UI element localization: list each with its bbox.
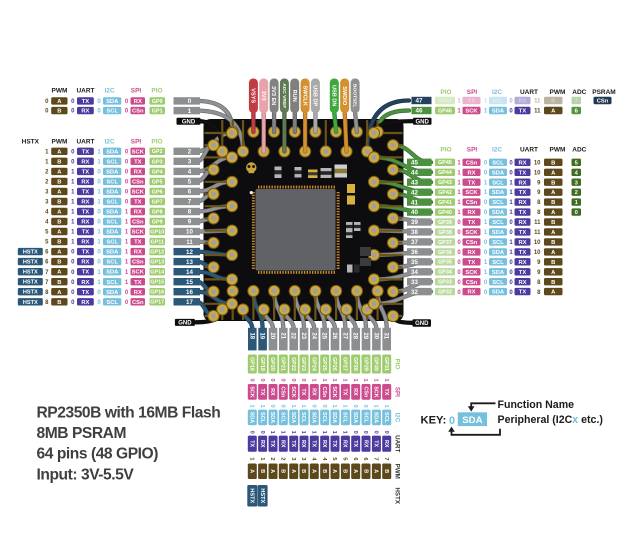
svg-text:17: 17	[186, 299, 193, 306]
svg-text:RX: RX	[134, 169, 142, 175]
svg-text:SCL: SCL	[362, 412, 368, 423]
svg-text:B: B	[551, 200, 555, 206]
svg-text:SCL: SCL	[280, 412, 286, 423]
svg-text:RX: RX	[518, 240, 526, 246]
svg-text:GP17: GP17	[150, 300, 164, 306]
svg-text:46: 46	[416, 108, 423, 115]
svg-text:2: 2	[575, 190, 578, 196]
svg-text:A: A	[249, 469, 255, 473]
svg-text:SPI: SPI	[131, 88, 142, 95]
svg-text:TX: TX	[82, 190, 90, 196]
svg-text:GP30: GP30	[373, 357, 379, 371]
svg-text:TX: TX	[519, 290, 527, 296]
svg-text:11: 11	[534, 99, 541, 105]
svg-text:GP22: GP22	[290, 357, 296, 371]
svg-text:5: 5	[331, 457, 337, 460]
svg-text:I2C: I2C	[394, 413, 401, 423]
svg-text:1: 1	[300, 405, 306, 408]
svg-text:TX: TX	[468, 220, 476, 226]
svg-text:RX: RX	[518, 99, 526, 105]
svg-text:16: 16	[186, 289, 193, 296]
svg-text:1: 1	[290, 431, 296, 434]
svg-text:GP42: GP42	[438, 190, 452, 196]
svg-text:TX: TX	[300, 388, 306, 395]
svg-text:SPI: SPI	[131, 139, 142, 146]
svg-text:PIO: PIO	[151, 88, 162, 95]
svg-text:I2C: I2C	[492, 147, 502, 154]
svg-text:24: 24	[310, 332, 316, 339]
svg-text:TX: TX	[519, 190, 527, 196]
svg-text:0: 0	[249, 431, 255, 434]
svg-text:B: B	[57, 109, 61, 115]
svg-text:SCL: SCL	[342, 412, 348, 423]
svg-text:HSTX: HSTX	[23, 280, 38, 286]
svg-text:ADC: ADC	[572, 147, 586, 154]
svg-text:Input: 3V-5.5V: Input: 3V-5.5V	[37, 466, 135, 483]
svg-text:B: B	[551, 220, 555, 226]
svg-text:TX: TX	[82, 270, 90, 276]
svg-text:SDA: SDA	[492, 230, 505, 236]
svg-text:PWM: PWM	[394, 464, 401, 479]
svg-text:GP45: GP45	[438, 160, 452, 166]
svg-text:PWM: PWM	[52, 88, 68, 95]
svg-text:B: B	[57, 220, 61, 226]
svg-text:B: B	[280, 469, 286, 473]
svg-text:PIO: PIO	[394, 359, 401, 370]
svg-text:37: 37	[411, 239, 418, 246]
svg-text:0: 0	[188, 98, 192, 105]
svg-text:1: 1	[373, 405, 379, 408]
svg-text:CSn: CSn	[132, 180, 144, 186]
svg-text:1: 1	[259, 457, 265, 460]
svg-text:1: 1	[259, 405, 265, 408]
svg-text:GP26: GP26	[331, 357, 337, 371]
svg-text:GP28: GP28	[352, 357, 358, 371]
svg-text:30: 30	[372, 332, 378, 339]
svg-text:GP46: GP46	[438, 108, 452, 114]
svg-text:0: 0	[383, 431, 389, 434]
svg-text:CSn: CSn	[466, 240, 478, 246]
svg-text:TX: TX	[352, 440, 358, 447]
svg-text:HSTX: HSTX	[22, 139, 40, 146]
svg-text:TX: TX	[134, 200, 142, 206]
svg-text:6: 6	[362, 457, 368, 460]
svg-text:PWM: PWM	[550, 89, 566, 96]
svg-text:1: 1	[311, 431, 317, 434]
svg-text:1: 1	[249, 405, 255, 408]
svg-text:5: 5	[342, 457, 348, 460]
svg-text:B: B	[342, 469, 348, 473]
svg-text:B: B	[551, 280, 555, 286]
svg-text:B: B	[551, 240, 555, 246]
svg-text:SDA: SDA	[249, 412, 255, 423]
svg-text:GP20: GP20	[269, 357, 275, 371]
svg-text:RX: RX	[362, 440, 368, 448]
svg-text:RX: RX	[518, 180, 526, 186]
svg-text:GP15: GP15	[150, 280, 164, 286]
svg-text:I2C: I2C	[104, 88, 114, 95]
svg-text:1: 1	[352, 378, 358, 381]
svg-text:SDA: SDA	[106, 190, 119, 196]
svg-text:TX: TX	[290, 440, 296, 447]
svg-text:ADC VREF: ADC VREF	[281, 83, 287, 108]
svg-text:GP2: GP2	[152, 149, 163, 155]
svg-text:1: 1	[300, 431, 306, 434]
svg-text:GP33: GP33	[438, 280, 452, 286]
svg-text:I2C: I2C	[104, 139, 114, 146]
svg-text:SDA: SDA	[290, 412, 296, 423]
svg-text:0: 0	[280, 405, 286, 408]
svg-text:TX: TX	[82, 290, 90, 296]
svg-text:SDA: SDA	[106, 210, 119, 216]
svg-text:UART: UART	[520, 89, 538, 96]
svg-text:USB DN: USB DN	[331, 85, 337, 106]
svg-text:GP44: GP44	[438, 170, 452, 176]
svg-text:VSYS: VSYS	[250, 88, 256, 103]
svg-text:TX: TX	[259, 388, 265, 395]
svg-text:RX: RX	[300, 440, 306, 448]
svg-text:2: 2	[188, 149, 192, 156]
svg-text:SDA: SDA	[106, 290, 119, 296]
svg-text:28: 28	[352, 332, 358, 339]
svg-text:RX: RX	[81, 180, 89, 186]
svg-text:SDA: SDA	[492, 290, 505, 296]
svg-text:8: 8	[188, 209, 192, 216]
svg-text:6: 6	[188, 189, 192, 196]
svg-text:1: 1	[188, 108, 192, 115]
svg-text:RX: RX	[467, 290, 475, 296]
svg-text:SCL: SCL	[106, 200, 118, 206]
svg-text:SCL: SCL	[492, 200, 504, 206]
svg-text:RX: RX	[81, 109, 89, 115]
svg-text:B: B	[57, 300, 61, 306]
svg-text:SCL: SCL	[300, 412, 306, 423]
svg-text:UART: UART	[76, 139, 94, 146]
svg-text:SCL: SCL	[492, 99, 504, 105]
svg-text:PSRAM: PSRAM	[592, 89, 615, 96]
svg-text:CSn: CSn	[132, 260, 144, 266]
svg-text:B: B	[57, 159, 61, 165]
svg-text:GND: GND	[178, 321, 192, 327]
svg-text:GP21: GP21	[280, 357, 286, 371]
svg-text:Peripheral (I2Cx etc.): Peripheral (I2Cx etc.)	[498, 414, 603, 426]
svg-text:B: B	[57, 260, 61, 266]
svg-text:13: 13	[186, 259, 193, 266]
svg-text:PIO: PIO	[440, 89, 451, 96]
svg-text:SCK: SCK	[132, 270, 145, 276]
svg-text:TX: TX	[82, 230, 90, 236]
svg-text:GP10: GP10	[150, 230, 164, 236]
svg-text:1: 1	[373, 378, 379, 381]
svg-text:GP35: GP35	[438, 260, 452, 266]
svg-text:7: 7	[575, 99, 578, 105]
svg-text:10: 10	[534, 170, 541, 176]
svg-text:USB DP: USB DP	[312, 85, 318, 106]
svg-text:11: 11	[534, 230, 541, 236]
svg-text:CSn: CSn	[321, 387, 327, 398]
svg-text:RX: RX	[518, 260, 526, 266]
svg-text:SPI: SPI	[467, 89, 478, 96]
svg-text:HSTX: HSTX	[23, 290, 38, 296]
svg-text:3V3: 3V3	[260, 91, 266, 101]
svg-text:SWDIO: SWDIO	[341, 86, 347, 106]
svg-text:CSn: CSn	[132, 109, 144, 115]
svg-text:SDA: SDA	[492, 109, 505, 115]
svg-text:GP29: GP29	[362, 357, 368, 371]
svg-text:GP31: GP31	[383, 357, 389, 371]
svg-text:RX: RX	[352, 388, 358, 396]
svg-text:TX: TX	[134, 240, 142, 246]
svg-text:GP47: GP47	[438, 98, 452, 104]
svg-text:B: B	[57, 240, 61, 246]
svg-text:TX: TX	[373, 440, 379, 447]
svg-text:SCK: SCK	[465, 230, 478, 236]
svg-text:B: B	[57, 280, 61, 286]
svg-text:HSTX: HSTX	[23, 260, 38, 266]
svg-text:CSn: CSn	[466, 280, 478, 286]
svg-text:TX: TX	[269, 440, 275, 447]
svg-text:10: 10	[534, 160, 541, 166]
svg-text:GP43: GP43	[438, 180, 452, 186]
svg-text:SDA: SDA	[106, 169, 119, 175]
svg-text:34: 34	[411, 269, 418, 276]
svg-text:B: B	[551, 99, 555, 105]
svg-text:GP13: GP13	[150, 260, 164, 266]
svg-text:1: 1	[362, 378, 368, 381]
svg-text:B: B	[300, 469, 306, 473]
svg-text:GP4: GP4	[152, 169, 163, 175]
svg-text:B: B	[383, 469, 389, 473]
svg-text:GP14: GP14	[150, 270, 164, 276]
svg-text:11: 11	[534, 109, 541, 115]
svg-text:ADC: ADC	[572, 89, 586, 96]
svg-text:A: A	[290, 469, 296, 473]
svg-text:TX: TX	[468, 99, 476, 105]
svg-text:RP2350B with 16MB Flash: RP2350B with 16MB Flash	[37, 405, 221, 422]
svg-text:SCK: SCK	[373, 386, 379, 397]
svg-text:1: 1	[321, 431, 327, 434]
svg-text:SCL: SCL	[106, 220, 118, 226]
svg-text:RX: RX	[311, 388, 317, 396]
svg-text:TX: TX	[468, 260, 476, 266]
svg-text:1: 1	[383, 378, 389, 381]
svg-text:SCK: SCK	[331, 386, 337, 397]
svg-text:19: 19	[259, 332, 265, 339]
svg-text:RX: RX	[81, 200, 89, 206]
svg-text:15: 15	[186, 279, 193, 286]
svg-text:1: 1	[331, 431, 337, 434]
svg-text:GP1: GP1	[152, 109, 163, 115]
svg-text:40: 40	[411, 209, 418, 216]
svg-text:SDA: SDA	[462, 415, 482, 426]
svg-text:SCL: SCL	[106, 280, 118, 286]
svg-text:TX: TX	[311, 440, 317, 447]
svg-text:TX: TX	[134, 280, 142, 286]
svg-text:TX: TX	[82, 169, 90, 175]
svg-text:41: 41	[411, 199, 418, 206]
svg-text:A: A	[331, 469, 337, 473]
svg-text:SCK: SCK	[290, 386, 296, 397]
svg-text:GP9: GP9	[152, 220, 163, 226]
svg-text:RX: RX	[81, 220, 89, 226]
svg-text:SDA: SDA	[106, 250, 119, 256]
svg-text:GP8: GP8	[152, 209, 163, 215]
svg-text:26: 26	[331, 332, 337, 339]
svg-text:GP39: GP39	[438, 220, 452, 226]
svg-text:SPI: SPI	[467, 147, 478, 154]
svg-text:5: 5	[188, 179, 192, 186]
svg-text:7: 7	[373, 457, 379, 460]
svg-text:TX: TX	[519, 170, 527, 176]
svg-text:RX: RX	[81, 240, 89, 246]
svg-text:SCK: SCK	[132, 230, 145, 236]
svg-text:3: 3	[290, 457, 296, 460]
svg-text:GP25: GP25	[321, 357, 327, 371]
svg-text:22: 22	[290, 332, 296, 339]
svg-text:1: 1	[383, 405, 389, 408]
svg-text:CSn: CSn	[466, 200, 478, 206]
svg-text:CSn: CSn	[362, 387, 368, 398]
svg-text:SCK: SCK	[465, 109, 478, 115]
svg-text:UART: UART	[76, 88, 94, 95]
svg-text:SCL: SCL	[383, 412, 389, 423]
svg-text:SDA: SDA	[373, 412, 379, 423]
svg-text:SCL: SCL	[106, 260, 118, 266]
svg-text:0: 0	[352, 431, 358, 434]
svg-text:RX: RX	[518, 160, 526, 166]
svg-text:RX: RX	[259, 440, 265, 448]
svg-text:SWCLK: SWCLK	[301, 85, 307, 106]
svg-text:SDA: SDA	[106, 270, 119, 276]
svg-text:B: B	[321, 469, 327, 473]
svg-text:GP16: GP16	[150, 290, 164, 296]
svg-text:GP7: GP7	[152, 199, 163, 205]
svg-text:3V3 EN: 3V3 EN	[270, 86, 276, 105]
svg-text:TX: TX	[519, 109, 527, 115]
svg-text:0: 0	[259, 378, 265, 381]
svg-text:PWM: PWM	[550, 147, 566, 154]
svg-text:1: 1	[342, 405, 348, 408]
svg-text:8MB PSRAM: 8MB PSRAM	[37, 425, 127, 442]
svg-text:BOOTSEL: BOOTSEL	[351, 84, 357, 108]
svg-text:TX: TX	[342, 388, 348, 395]
svg-text:UART: UART	[394, 435, 401, 452]
svg-text:0: 0	[300, 378, 306, 381]
svg-text:GP38: GP38	[438, 230, 452, 236]
svg-text:GP5: GP5	[152, 179, 163, 185]
svg-text:1: 1	[311, 378, 317, 381]
svg-text:1: 1	[342, 378, 348, 381]
svg-text:1: 1	[249, 457, 255, 460]
svg-text:RX: RX	[518, 200, 526, 206]
svg-text:HSTX: HSTX	[259, 488, 265, 503]
svg-text:GP12: GP12	[150, 250, 164, 256]
svg-text:RX: RX	[81, 260, 89, 266]
svg-text:SDA: SDA	[492, 170, 505, 176]
svg-text:TX: TX	[82, 99, 90, 105]
svg-text:GND: GND	[182, 119, 196, 125]
svg-text:RX: RX	[518, 220, 526, 226]
svg-text:SDA: SDA	[492, 270, 505, 276]
svg-text:SCL: SCL	[106, 109, 118, 115]
svg-text:RX: RX	[321, 440, 327, 448]
svg-text:B: B	[57, 200, 61, 206]
svg-text:CSn: CSn	[132, 220, 144, 226]
svg-text:TX: TX	[468, 180, 476, 186]
svg-text:B: B	[57, 180, 61, 186]
svg-text:1: 1	[331, 378, 337, 381]
svg-text:PIO: PIO	[151, 139, 162, 146]
svg-text:GP24: GP24	[311, 357, 317, 371]
svg-text:HSTX: HSTX	[23, 300, 38, 306]
svg-text:SDA: SDA	[492, 250, 505, 256]
svg-text:32: 32	[411, 289, 418, 296]
svg-text:SCL: SCL	[321, 412, 327, 423]
svg-text:0: 0	[352, 405, 358, 408]
svg-text:42: 42	[411, 189, 418, 196]
svg-text:39: 39	[411, 219, 418, 226]
svg-text:GP6: GP6	[152, 189, 163, 195]
svg-text:SDA: SDA	[311, 412, 317, 423]
svg-text:0: 0	[311, 405, 317, 408]
svg-text:GP40: GP40	[438, 210, 452, 216]
svg-text:3: 3	[300, 457, 306, 460]
svg-text:38: 38	[411, 229, 418, 236]
svg-text:6: 6	[352, 457, 358, 460]
svg-text:SCL: SCL	[106, 300, 118, 306]
svg-text:64 pins (48 GPIO): 64 pins (48 GPIO)	[37, 446, 159, 463]
svg-text:18: 18	[248, 332, 254, 339]
svg-text:1: 1	[280, 431, 286, 434]
svg-text:B: B	[551, 160, 555, 166]
svg-text:0: 0	[269, 405, 275, 408]
svg-text:SCL: SCL	[259, 412, 265, 423]
svg-text:SDA: SDA	[269, 412, 275, 423]
svg-text:0: 0	[362, 405, 368, 408]
svg-text:7: 7	[188, 199, 192, 206]
svg-text:10: 10	[186, 229, 193, 236]
svg-text:12: 12	[186, 249, 193, 256]
svg-text:TX: TX	[519, 250, 527, 256]
svg-text:47: 47	[416, 98, 423, 105]
svg-text:SCL: SCL	[106, 180, 118, 186]
svg-text:1: 1	[321, 378, 327, 381]
svg-text:PIO: PIO	[440, 147, 451, 154]
svg-text:10: 10	[534, 250, 541, 256]
svg-text:CSn: CSn	[280, 387, 286, 398]
svg-text:44: 44	[411, 169, 418, 176]
svg-text:B: B	[551, 260, 555, 266]
svg-text:33: 33	[411, 279, 418, 286]
svg-text:GP19: GP19	[259, 357, 265, 371]
svg-text:PWM: PWM	[52, 139, 68, 146]
svg-text:SCL: SCL	[492, 160, 504, 166]
svg-text:SDA: SDA	[492, 210, 505, 216]
svg-text:GP3: GP3	[152, 159, 163, 165]
svg-text:RX: RX	[134, 290, 142, 296]
svg-text:TX: TX	[249, 440, 255, 447]
svg-text:RX: RX	[81, 300, 89, 306]
svg-text:TX: TX	[134, 159, 142, 165]
svg-text:25: 25	[321, 332, 327, 339]
svg-text:10: 10	[534, 240, 541, 246]
svg-text:SCL: SCL	[106, 240, 118, 246]
svg-text:SDA: SDA	[106, 99, 119, 105]
svg-text:0: 0	[575, 210, 578, 216]
svg-text:TX: TX	[383, 388, 389, 395]
svg-text:27: 27	[341, 332, 347, 339]
svg-text:UART: UART	[520, 147, 538, 154]
